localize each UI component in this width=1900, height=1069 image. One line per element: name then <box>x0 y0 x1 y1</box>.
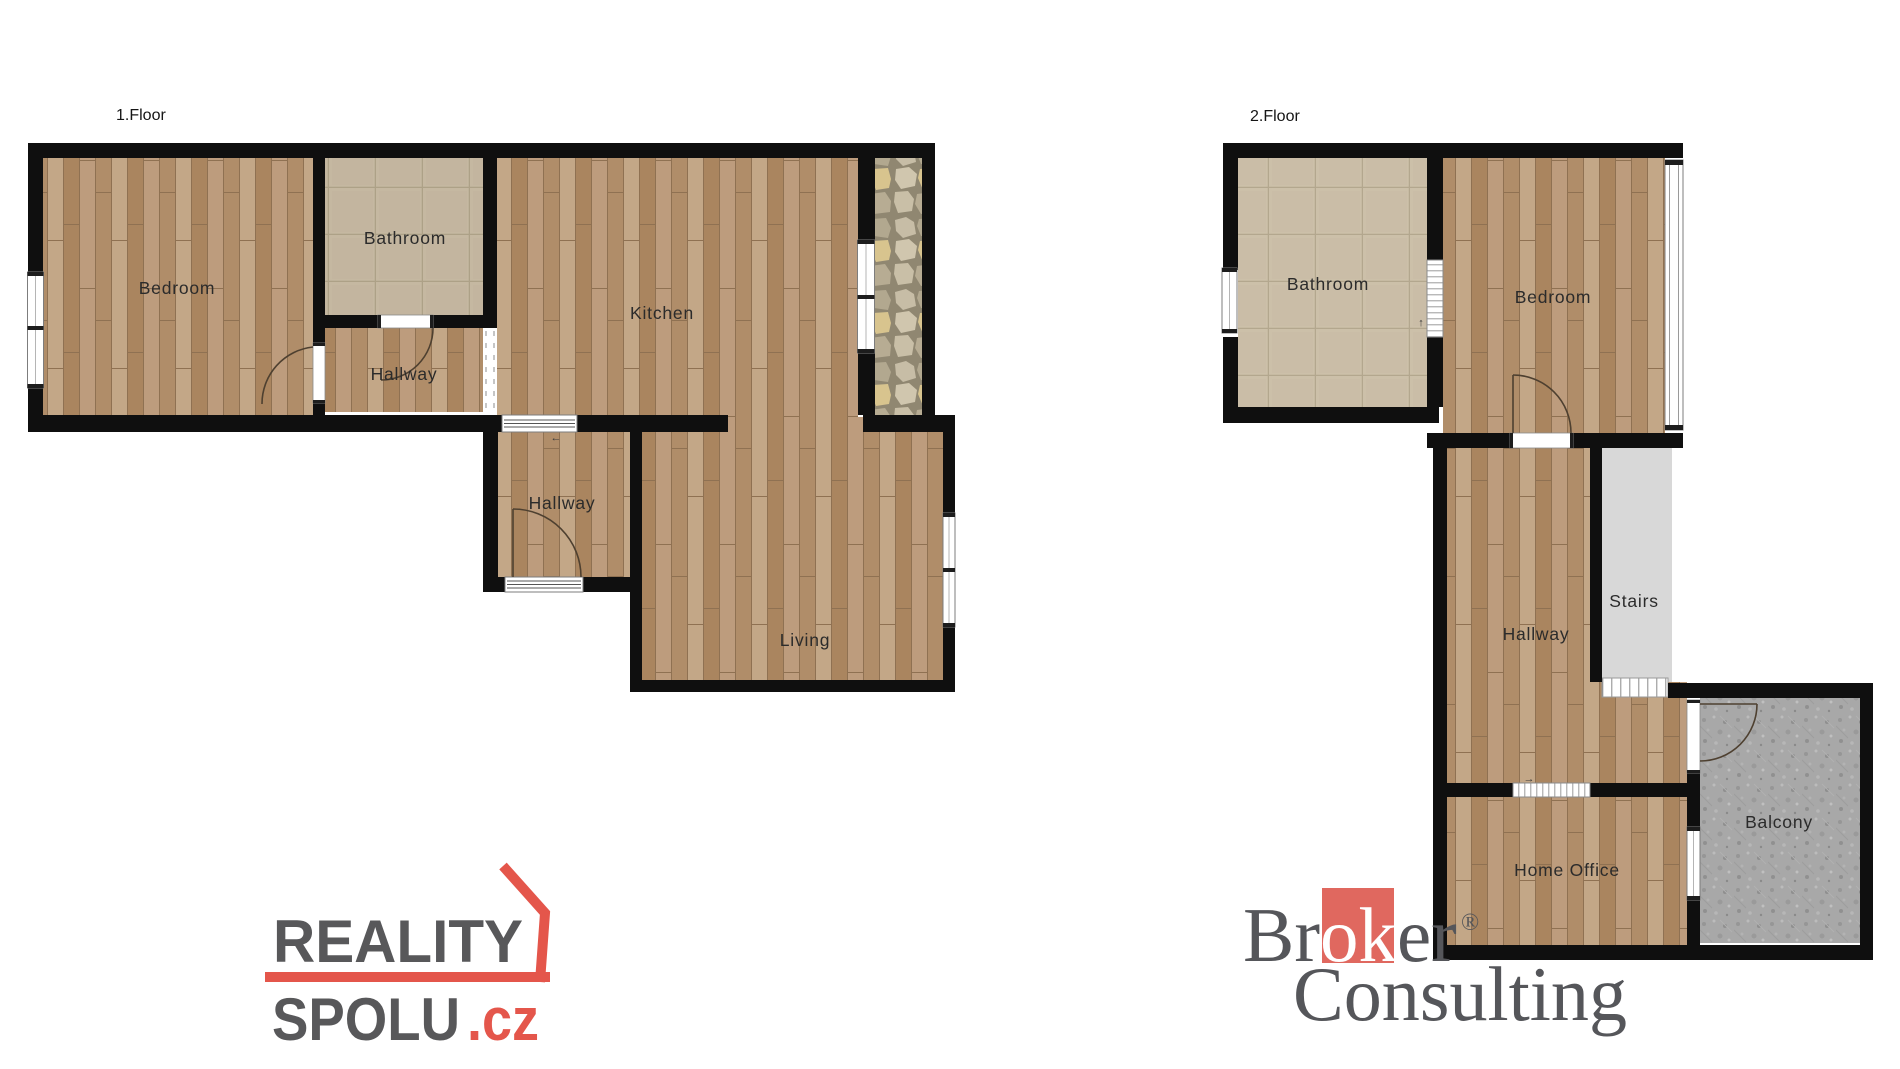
floorplan-page: 1.Floor Bedroom Bathroom Hallway Kitchen… <box>0 0 1900 1069</box>
reality-wordmark-line1: REALITY <box>273 908 523 975</box>
floor1-living-window <box>943 513 955 627</box>
reality-tld: .cz <box>467 986 539 1053</box>
reality-underline <box>265 972 550 982</box>
broker-registered-mark: ® <box>1461 910 1479 936</box>
floor1-plan: 1.Floor Bedroom Bathroom Hallway Kitchen… <box>28 107 956 692</box>
floor2-bedroom-label: Bedroom <box>1515 287 1592 307</box>
floor2-stairs-area <box>1602 448 1672 682</box>
broker-wordmark-line2: Consulting <box>1293 951 1627 1037</box>
floor1-title: 1.Floor <box>116 107 166 124</box>
floor2-balcony-label: Balcony <box>1745 812 1813 832</box>
floor2-hallway-floor <box>1447 448 1590 783</box>
floor1-door-direction-arrow: ← <box>551 432 562 444</box>
floor2-balcony-window <box>1687 827 1700 900</box>
floor2-stairs-label: Stairs <box>1609 591 1659 611</box>
floor1-bedroom-label: Bedroom <box>139 278 216 298</box>
floor2-bathroom-window <box>1222 268 1237 333</box>
floor1-stone-strip <box>875 158 922 415</box>
floor2-window-direction-arrow: ↑ <box>1418 317 1424 329</box>
floor1-kitchen-window <box>858 240 875 353</box>
reality-wordmark-line2: SPOLU <box>272 986 460 1053</box>
floor2-home-office-window <box>1513 783 1590 797</box>
floor2-home-office-label: Home Office <box>1514 860 1620 880</box>
floor1-kitchen-french-door <box>502 415 577 432</box>
floor2-plan: 2.Floor Bathroom Bedroom Hallway Stairs … <box>1222 108 1873 960</box>
floor1-hallway-lower-label: Hallway <box>529 493 596 513</box>
floor1-kitchen-label: Kitchen <box>630 303 694 323</box>
floor2-bedroom-window <box>1665 160 1683 430</box>
floor2-interior-window <box>1427 260 1443 337</box>
floor1-bedroom-window <box>28 272 44 388</box>
floor2-bathroom-label: Bathroom <box>1287 274 1369 294</box>
floor1-hallway-kitchen-opening <box>483 328 497 412</box>
floorplan-canvas: 1.Floor Bedroom Bathroom Hallway Kitchen… <box>0 0 1900 1069</box>
floor1-open-passage-floor <box>728 417 863 430</box>
floor2-title: 2.Floor <box>1250 108 1300 125</box>
reality-spolu-logo: REALITY SPOLU .cz <box>265 866 550 1053</box>
floor1-hallway-upper-label: Hallway <box>371 364 438 384</box>
floor1-kitchen-floor <box>497 158 858 417</box>
floor1-living-label: Living <box>780 630 831 650</box>
floor2-hallway-label: Hallway <box>1503 624 1570 644</box>
floor1-bathroom-label: Bathroom <box>364 228 446 248</box>
floor2-stair-treads <box>1602 678 1668 697</box>
floor2-office-window-direction-arrow: → <box>1524 773 1535 785</box>
